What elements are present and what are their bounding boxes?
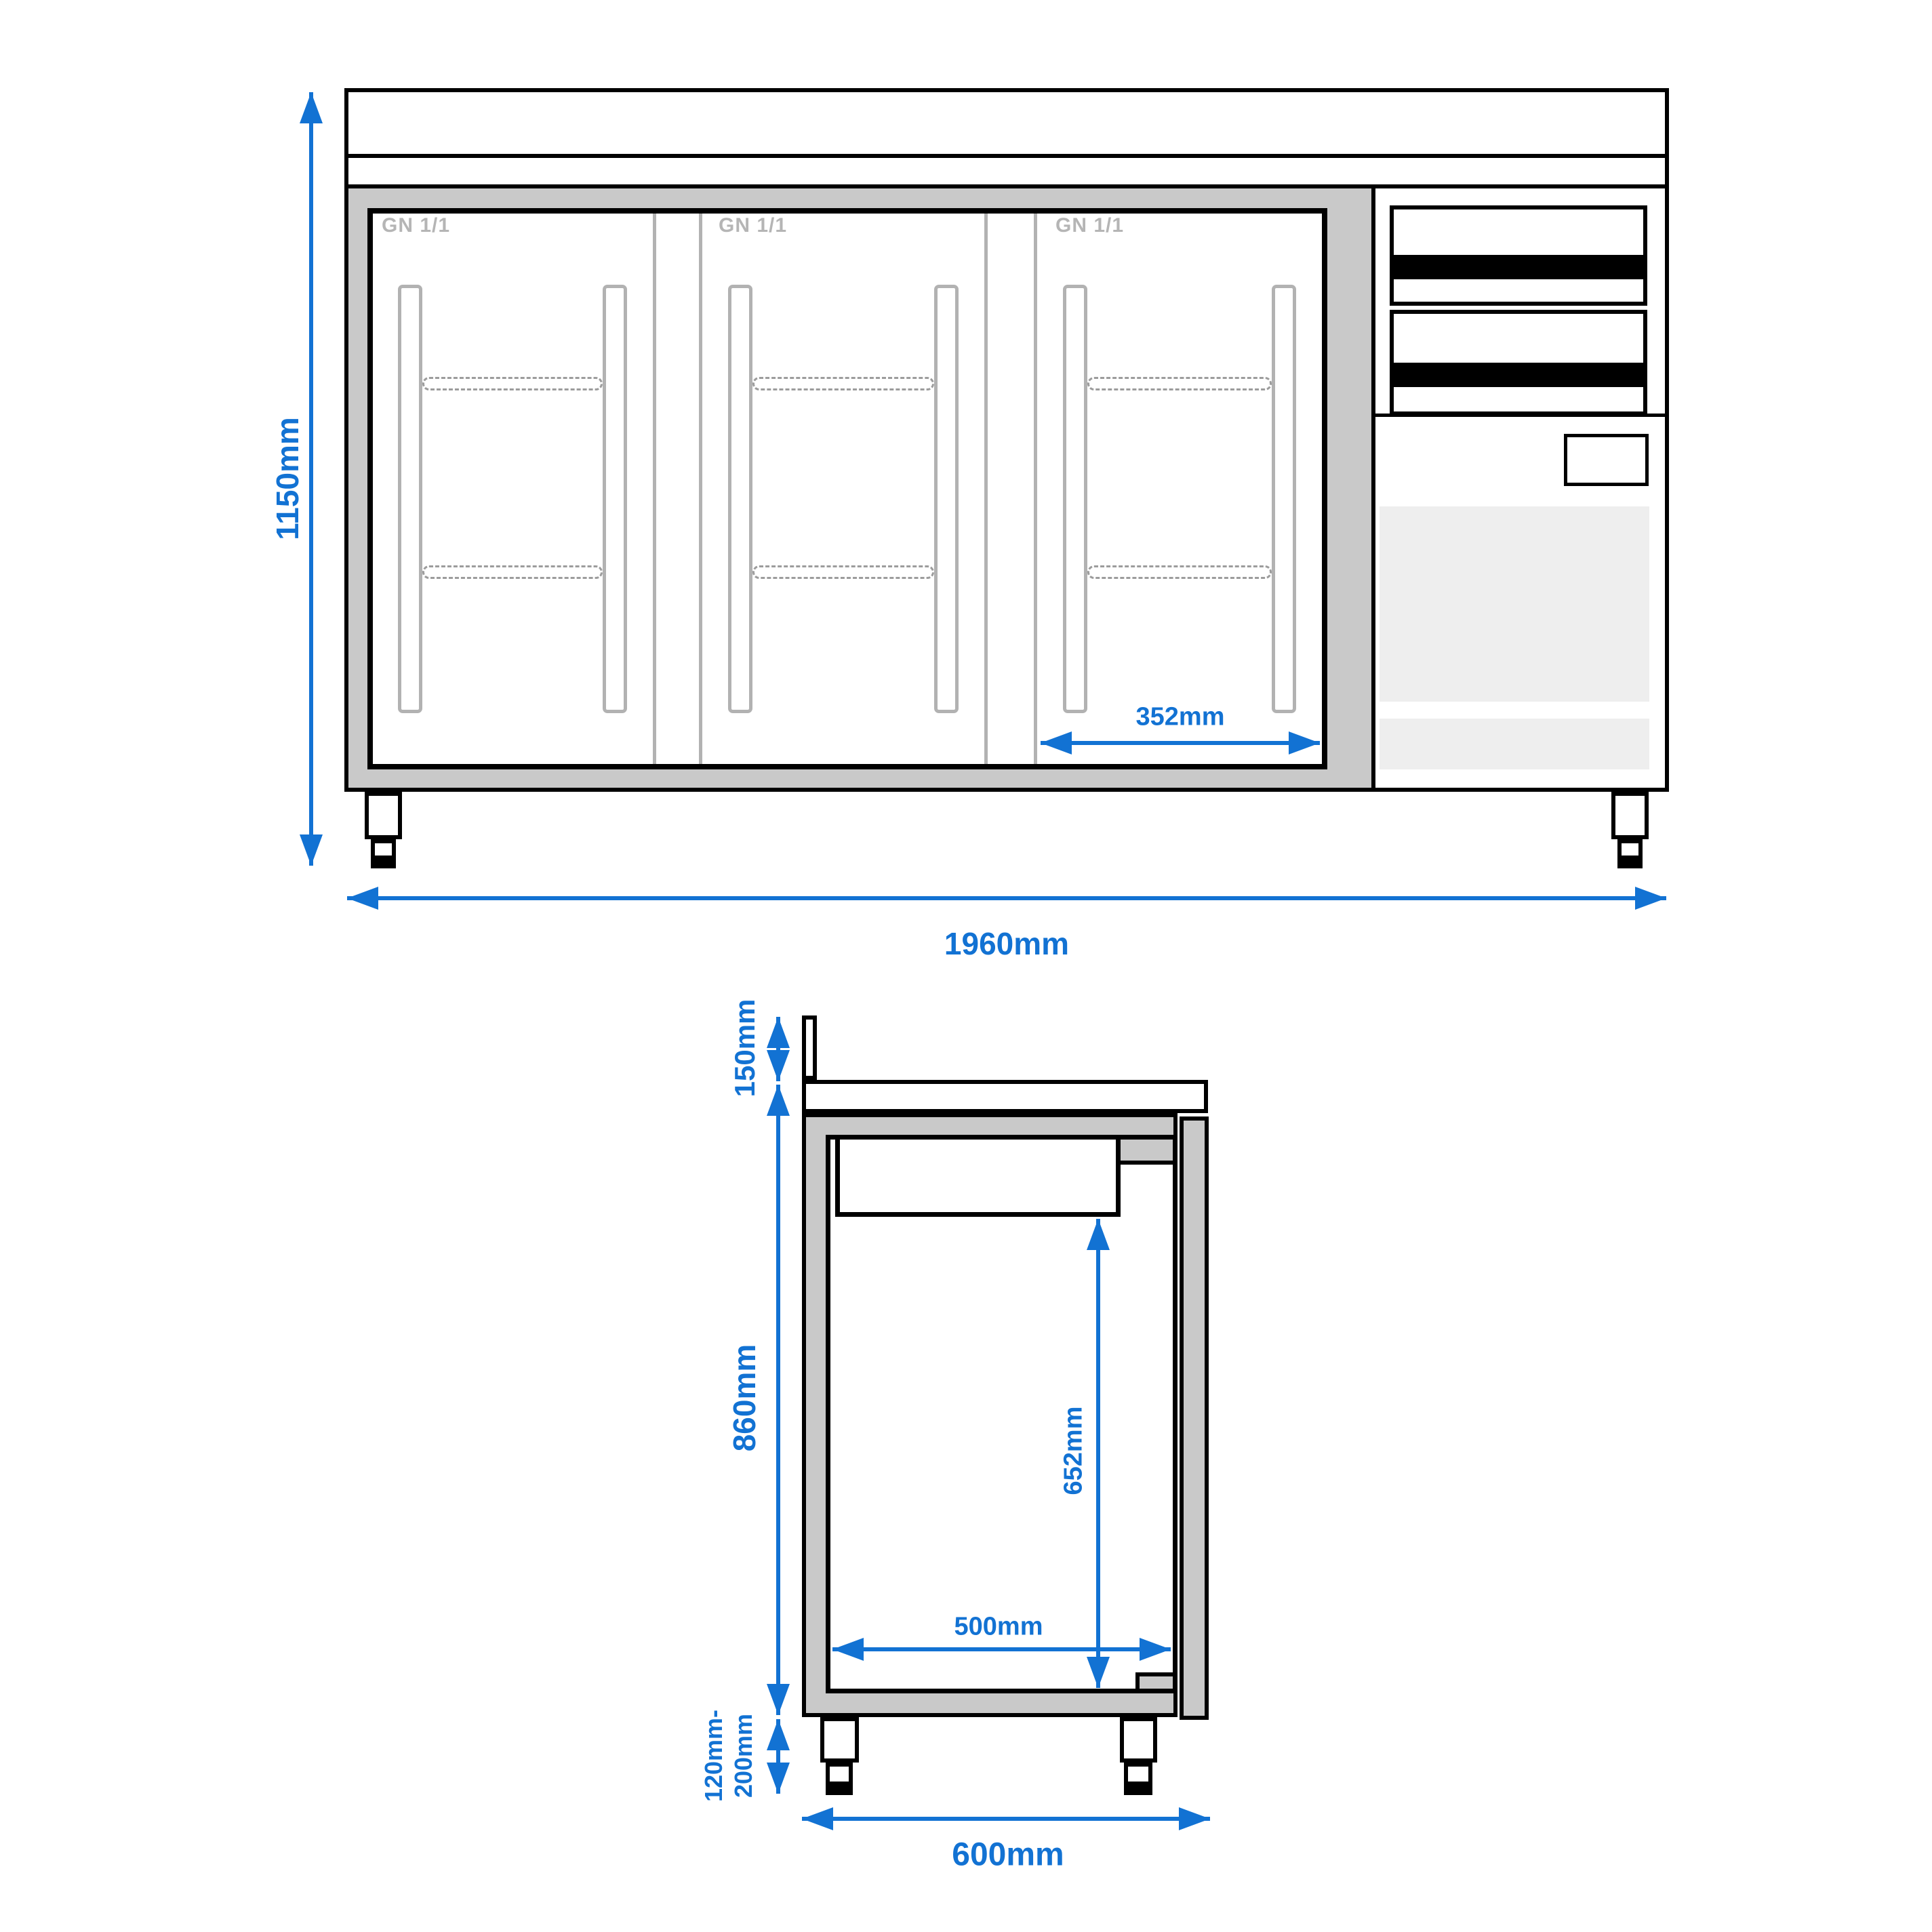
arrowhead-down-icon: [767, 1050, 790, 1081]
machine-panel-small: [1380, 719, 1649, 769]
front-leg-left-base: [371, 860, 396, 868]
side-worktop: [802, 1080, 1208, 1113]
front-leg-right-upper: [1611, 792, 1649, 839]
door-boundary-line: [1034, 214, 1037, 764]
dim-line-height: [309, 92, 313, 866]
door-handle-strip: [1063, 285, 1087, 713]
door-boundary-line: [653, 214, 656, 764]
arrowhead-up-icon: [767, 1085, 790, 1116]
dim-label-overall-depth: 600mm: [952, 1836, 1064, 1874]
arrowhead-up-icon: [300, 92, 323, 123]
dim-label-inner-height: 652mm: [1060, 1407, 1089, 1495]
dim-label-inner-depth: 500mm: [954, 1613, 1043, 1642]
dim-label-overall-width: 1960mm: [944, 925, 1069, 962]
side-leg-right-base: [1124, 1786, 1152, 1795]
side-upstand: [802, 1015, 817, 1080]
dim-line-inner-height: [1096, 1219, 1100, 1688]
side-leg-right-upper: [1120, 1717, 1157, 1763]
arrowhead-right-icon: [1179, 1807, 1210, 1830]
dim-label-door-opening: 352mm: [1136, 703, 1225, 732]
dim-line-door-opening: [1041, 741, 1320, 745]
door-handle-strip: [1272, 285, 1296, 713]
door-handle-strip: [934, 285, 959, 713]
shelf-dashed: [1087, 565, 1272, 579]
arrowhead-up-icon: [1087, 1219, 1110, 1250]
shelf-dashed: [422, 377, 603, 390]
vent-grille-lower: [1390, 310, 1647, 416]
door-boundary-line: [984, 214, 988, 764]
vent-grille-slot: [1394, 363, 1643, 387]
front-view: GN 1/1 GN 1/1 GN 1/1 1150mm 1960mm 352mm: [0, 0, 1932, 983]
side-step-bottom-right: [1135, 1672, 1173, 1689]
dim-line-inner-depth: [832, 1647, 1171, 1651]
arrowhead-down-icon: [767, 1763, 790, 1794]
machine-divider-line: [1375, 414, 1669, 417]
arrowhead-up-icon: [767, 1719, 790, 1750]
door-handle-strip: [728, 285, 752, 713]
side-top-box: [835, 1135, 1121, 1217]
arrowhead-left-icon: [802, 1807, 833, 1830]
door-handle-strip: [603, 285, 627, 713]
dim-label-overall-height: 1150mm: [269, 417, 306, 540]
side-leg-left-base: [826, 1786, 853, 1795]
arrowhead-right-icon: [1635, 887, 1666, 910]
dim-label-feet-line2: 200mm: [729, 1714, 758, 1798]
front-leg-right-base: [1617, 860, 1643, 868]
side-door-profile: [1180, 1116, 1209, 1720]
shelf-dashed: [1087, 377, 1272, 390]
vent-grille-slot: [1394, 255, 1643, 279]
arrowhead-down-icon: [1087, 1657, 1110, 1688]
front-machine-separator: [1371, 184, 1375, 792]
dim-line-overall-depth: [802, 1817, 1210, 1821]
arrowhead-left-icon: [1041, 731, 1072, 754]
shelf-dashed: [752, 565, 934, 579]
side-interior: [826, 1135, 1178, 1693]
door-handle-strip: [398, 285, 422, 713]
side-leg-right-foot: [1124, 1763, 1152, 1786]
side-step-top-right: [1121, 1140, 1173, 1165]
shelf-dashed: [422, 565, 603, 579]
dim-label-body-height: 860mm: [726, 1344, 763, 1452]
arrowhead-right-icon: [1140, 1638, 1171, 1661]
shelf-dashed: [752, 377, 934, 390]
control-panel: [1564, 434, 1649, 486]
arrowhead-right-icon: [1289, 731, 1320, 754]
dim-line-width: [347, 896, 1666, 900]
arrowhead-left-icon: [347, 887, 378, 910]
gn-label: GN 1/1: [1055, 214, 1124, 237]
dim-label-feet-line1: 120mm-: [700, 1710, 728, 1802]
gn-label: GN 1/1: [382, 214, 450, 237]
arrowhead-down-icon: [767, 1684, 790, 1715]
front-leg-left-foot: [371, 839, 396, 860]
vent-grille-upper: [1390, 205, 1647, 306]
arrowhead-down-icon: [300, 834, 323, 866]
front-leg-right-foot: [1617, 839, 1643, 860]
front-leg-left-upper: [365, 792, 402, 839]
side-leg-left-foot: [826, 1763, 853, 1786]
machine-panel-large: [1380, 506, 1649, 702]
side-leg-left-upper: [820, 1717, 859, 1763]
gn-label: GN 1/1: [719, 214, 787, 237]
door-boundary-line: [699, 214, 702, 764]
dim-line-body-height: [776, 1085, 780, 1715]
front-worktop-line-1: [344, 154, 1669, 158]
arrowhead-up-icon: [767, 1017, 790, 1048]
dim-label-upstand: 150mm: [729, 999, 761, 1098]
front-doors-area: [367, 208, 1327, 769]
arrowhead-left-icon: [832, 1638, 864, 1661]
